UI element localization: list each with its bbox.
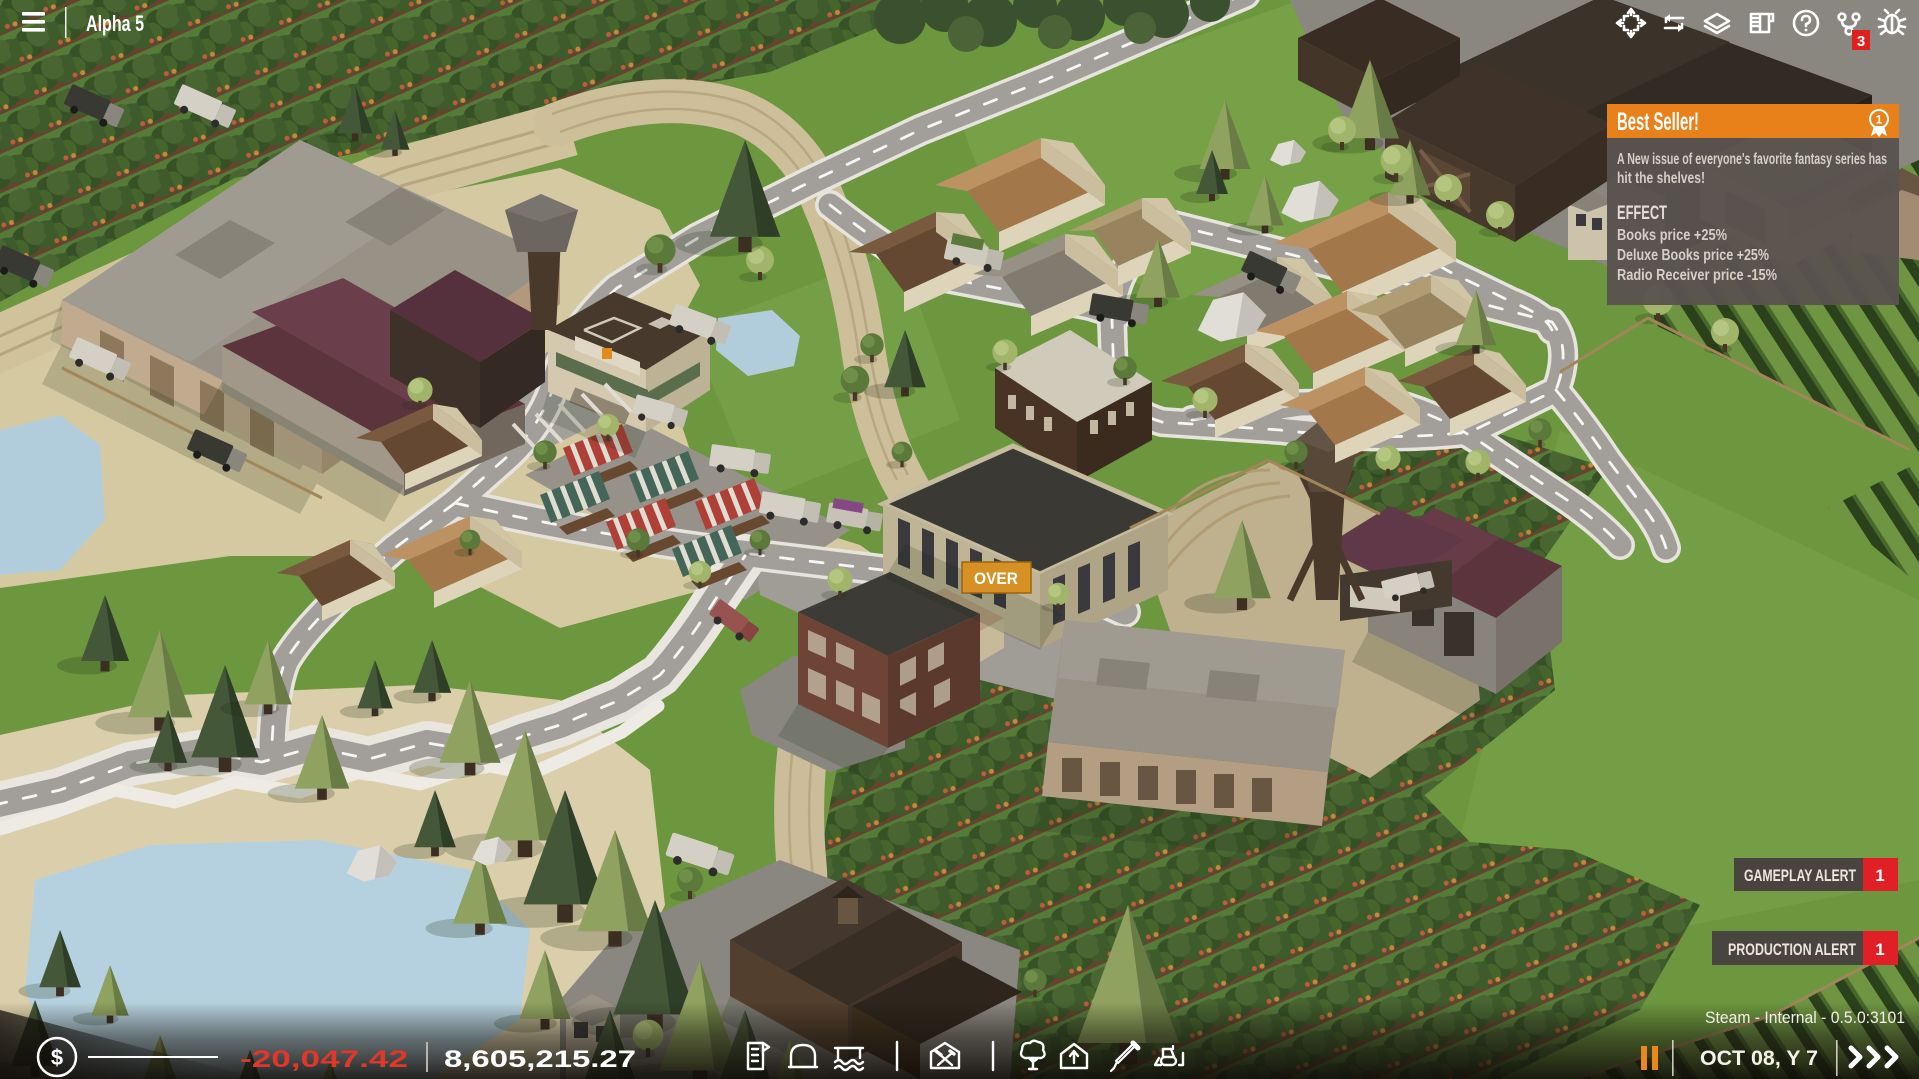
svg-text:3: 3 — [1857, 33, 1865, 50]
svg-text:Best Seller!: Best Seller! — [1617, 108, 1699, 136]
svg-text:1: 1 — [1875, 940, 1884, 959]
svg-text:A New issue of everyone's favo: A New issue of everyone's favorite fanta… — [1617, 151, 1887, 168]
svg-text:PRODUCTION ALERT: PRODUCTION ALERT — [1728, 940, 1856, 959]
svg-text:Alpha 5: Alpha 5 — [86, 11, 144, 36]
svg-text:Radio Receiver price -15%: Radio Receiver price -15% — [1617, 267, 1777, 284]
svg-text:OCT 08, Y 7: OCT 08, Y 7 — [1700, 1047, 1818, 1070]
svg-text:1: 1 — [1875, 866, 1884, 885]
svg-text:Deluxe Books price +25%: Deluxe Books price +25% — [1617, 247, 1769, 264]
svg-text:hit the shelves!: hit the shelves! — [1617, 170, 1705, 187]
svg-text:EFFECT: EFFECT — [1617, 203, 1667, 224]
svg-text:GAMEPLAY ALERT: GAMEPLAY ALERT — [1744, 866, 1856, 885]
svg-text:OVER: OVER — [974, 569, 1018, 588]
svg-text:8,605,215.27: 8,605,215.27 — [444, 1046, 636, 1073]
svg-text:1: 1 — [1876, 113, 1883, 127]
svg-text:Books price +25%: Books price +25% — [1617, 227, 1727, 244]
svg-text:$: $ — [51, 1045, 63, 1070]
svg-text:Steam - Internal - 0.5.0:3101: Steam - Internal - 0.5.0:3101 — [1705, 1008, 1905, 1027]
svg-text:-20,047.42: -20,047.42 — [240, 1046, 408, 1073]
